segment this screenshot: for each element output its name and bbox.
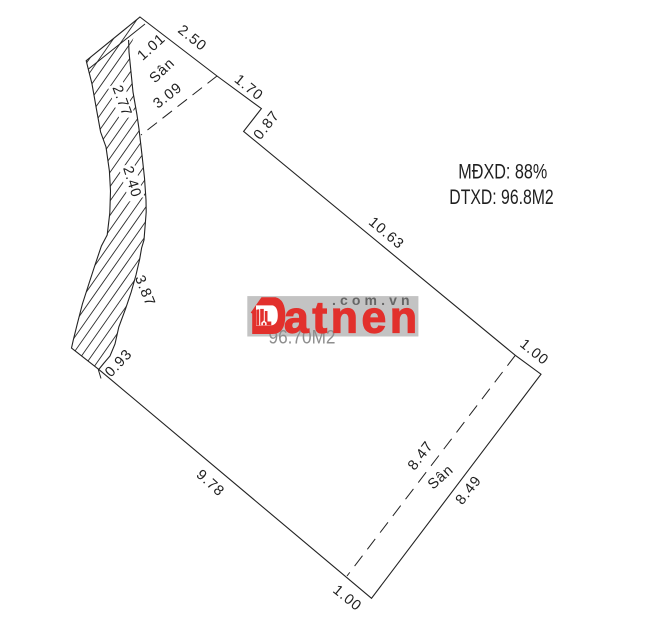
svg-text:atnen: atnen	[284, 294, 421, 343]
svg-text:DTXD: 96.8M2: DTXD: 96.8M2	[449, 186, 553, 209]
svg-text:MĐXD: 88%: MĐXD: 88%	[458, 161, 547, 184]
